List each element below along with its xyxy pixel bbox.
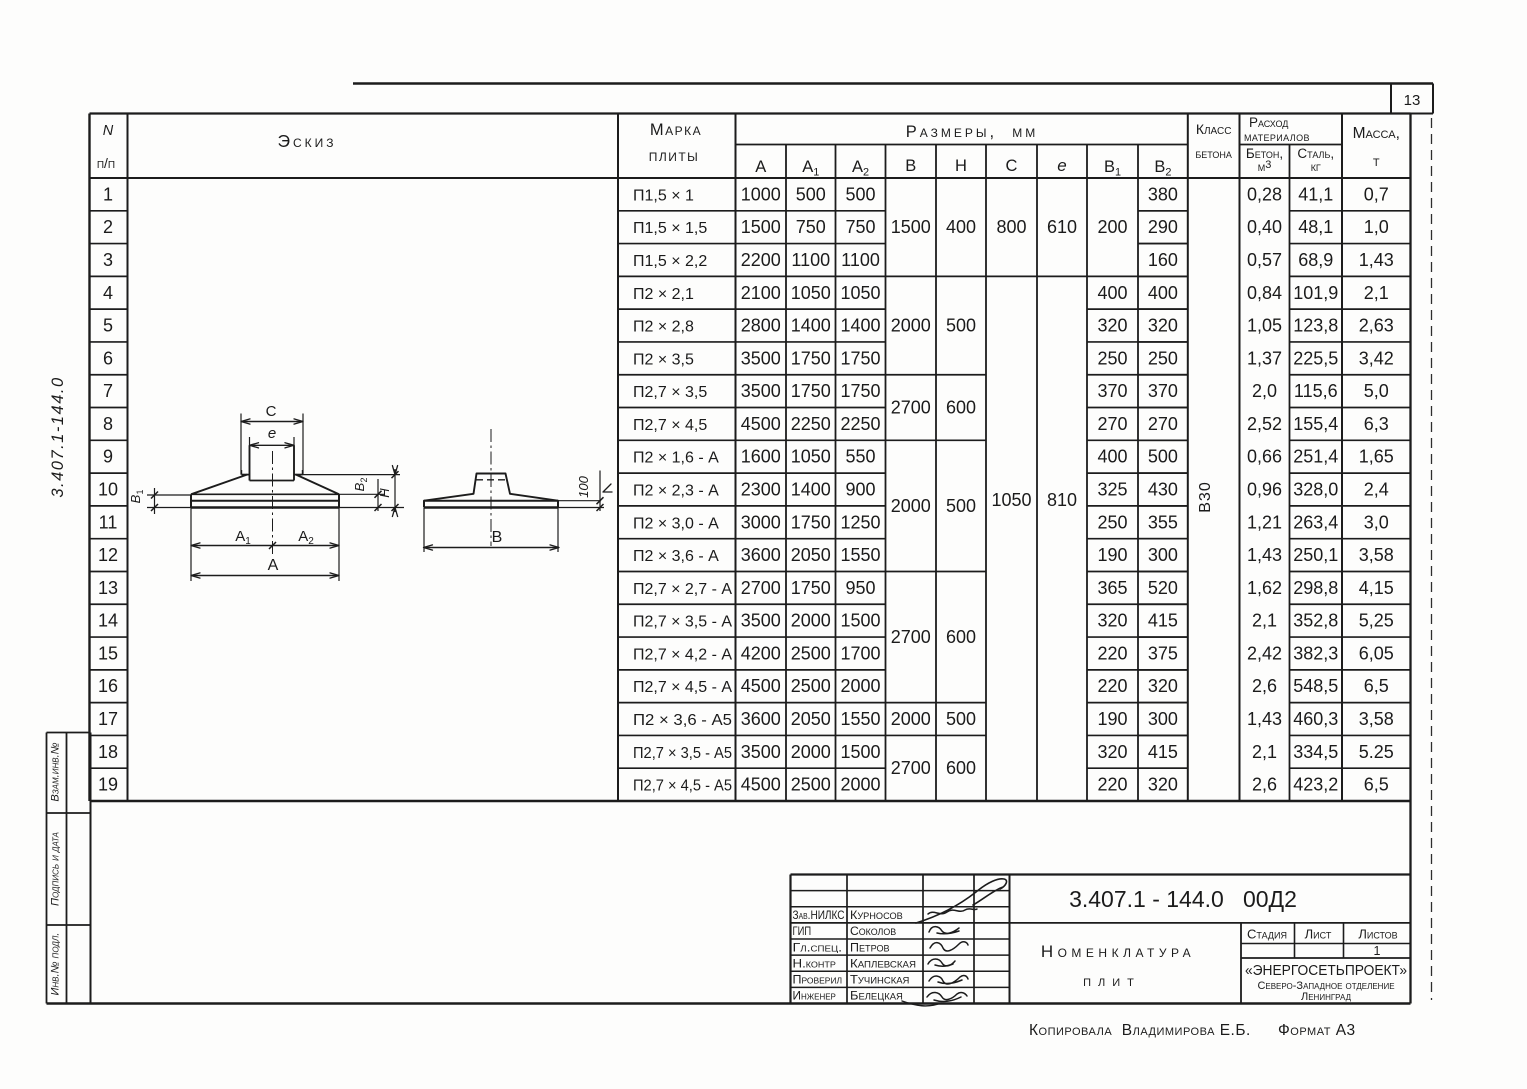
svg-text:6,5: 6,5 [1364,676,1389,696]
svg-text:2,63: 2,63 [1359,316,1394,336]
svg-text:155,4: 155,4 [1293,414,1338,434]
svg-text:Белецкая: Белецкая [850,989,903,1003]
svg-text:4200: 4200 [741,643,781,663]
svg-text:6,3: 6,3 [1364,414,1389,434]
svg-text:2500: 2500 [791,643,831,663]
svg-text:2000: 2000 [840,775,880,795]
svg-text:325: 325 [1097,480,1127,500]
svg-text:1400: 1400 [791,480,831,500]
svg-text:610: 610 [1047,217,1077,237]
svg-text:250: 250 [1097,512,1127,532]
svg-text:1,65: 1,65 [1359,447,1394,467]
svg-text:2: 2 [359,477,369,482]
svg-text:400: 400 [946,217,976,237]
svg-text:Ленинград: Ленинград [1301,991,1352,1003]
svg-text:Класс: Класс [1196,121,1232,137]
svg-text:2250: 2250 [840,414,880,434]
svg-text:Инв.№ подл.: Инв.№ подл. [50,933,62,996]
svg-text:2300: 2300 [741,480,781,500]
svg-text:750: 750 [796,217,826,237]
svg-text:4500: 4500 [741,676,781,696]
svg-text:3: 3 [103,250,113,270]
svg-text:1000: 1000 [741,184,781,204]
svg-text:1550: 1550 [840,709,880,729]
svg-text:0,84: 0,84 [1247,283,1282,303]
svg-text:Каплевская: Каплевская [850,956,916,970]
svg-text:1050: 1050 [791,447,831,467]
svg-text:Тучинская: Тучинская [850,973,909,987]
svg-text:Н: Н [377,488,392,498]
svg-text:Расход: Расход [1249,115,1288,130]
svg-text:0,28: 0,28 [1247,184,1282,204]
svg-text:3,42: 3,42 [1359,348,1394,368]
svg-text:Зав.НИЛКС: Зав.НИЛКС [793,908,845,922]
svg-text:А1: А1 [235,528,251,547]
svg-text:1050: 1050 [991,490,1031,510]
svg-text:17: 17 [98,709,118,729]
svg-text:Масса,: Масса, [1353,125,1400,142]
svg-text:7: 7 [103,381,113,401]
svg-text:П2,7 × 4,5: П2,7 × 4,5 [633,417,707,434]
svg-text:2000: 2000 [891,316,931,336]
svg-text:415: 415 [1148,611,1178,631]
svg-text:1400: 1400 [791,316,831,336]
svg-text:290: 290 [1148,217,1178,237]
svg-text:400: 400 [1097,283,1127,303]
svg-text:2,1: 2,1 [1364,283,1389,303]
svg-text:Н.контр: Н.контр [793,956,836,970]
svg-text:1050: 1050 [840,283,880,303]
svg-text:4: 4 [103,283,113,303]
svg-text:П2,7 × 4,5 - А5: П2,7 × 4,5 - А5 [633,778,732,795]
svg-text:Номенклатура: Номенклатура [1041,942,1195,961]
svg-text:бетона: бетона [1195,146,1232,161]
svg-text:п/п: п/п [97,155,115,171]
svg-text:41,1: 41,1 [1298,184,1333,204]
svg-text:3500: 3500 [741,348,781,368]
svg-text:2000: 2000 [891,709,931,729]
svg-text:1750: 1750 [791,578,831,598]
svg-text:123,8: 123,8 [1293,316,1338,336]
svg-text:кг: кг [1311,159,1321,174]
svg-text:2700: 2700 [891,627,931,647]
svg-text:т: т [1373,153,1380,170]
svg-text:П2 × 1,6 - А: П2 × 1,6 - А [633,450,719,467]
svg-text:320: 320 [1097,316,1127,336]
svg-text:3.407.1-144.0: 3.407.1-144.0 [49,376,67,497]
svg-text:2: 2 [103,217,113,237]
svg-text:1: 1 [135,489,145,494]
svg-text:Петров: Петров [850,940,890,954]
svg-text:Копировала Владимирова Е.Б.: Копировала Владимирова Е.Б. [1029,1022,1251,1039]
svg-text:2,1: 2,1 [1252,611,1277,631]
svg-text:220: 220 [1097,775,1127,795]
svg-text:ГИП: ГИП [793,924,812,938]
svg-text:3,0: 3,0 [1364,512,1389,532]
svg-text:А: А [268,557,279,574]
svg-text:400: 400 [1097,447,1127,467]
svg-text:400: 400 [1148,283,1178,303]
svg-text:9: 9 [103,447,113,467]
svg-text:1750: 1750 [840,381,880,401]
svg-text:2500: 2500 [791,775,831,795]
svg-text:19: 19 [98,775,118,795]
svg-text:3,58: 3,58 [1359,545,1394,565]
svg-text:11: 11 [99,512,118,532]
svg-text:320: 320 [1148,676,1178,696]
svg-text:П2 × 3,6 - А5: П2 × 3,6 - А5 [633,712,732,729]
svg-text:2,0: 2,0 [1252,381,1277,401]
svg-text:1400: 1400 [840,316,880,336]
svg-text:4500: 4500 [741,414,781,434]
svg-text:328,0: 328,0 [1293,480,1338,500]
svg-text:415: 415 [1148,742,1178,762]
svg-text:3,58: 3,58 [1359,709,1394,729]
svg-text:2000: 2000 [840,676,880,696]
svg-text:250,1: 250,1 [1293,545,1338,565]
svg-text:10: 10 [98,480,118,500]
svg-text:В: В [352,482,367,491]
svg-text:1: 1 [103,184,113,204]
svg-text:460,3: 460,3 [1293,709,1338,729]
svg-text:Н: Н [955,157,967,175]
svg-text:15: 15 [98,643,118,663]
svg-text:П2,7 × 3,5: П2,7 × 3,5 [633,384,707,401]
svg-text:300: 300 [1148,545,1178,565]
svg-text:1500: 1500 [891,217,931,237]
svg-text:380: 380 [1148,184,1178,204]
svg-text:2000: 2000 [791,611,831,631]
svg-text:Курносов: Курносов [850,908,903,922]
svg-text:2,1: 2,1 [1252,742,1277,762]
svg-text:3600: 3600 [741,709,781,729]
svg-text:300: 300 [1148,709,1178,729]
svg-text:5,25: 5,25 [1359,611,1394,631]
svg-text:370: 370 [1097,381,1127,401]
svg-text:12: 12 [98,545,118,565]
svg-text:263,4: 263,4 [1293,512,1338,532]
svg-text:материалов: материалов [1244,129,1310,144]
svg-text:Гл.спец.: Гл.спец. [793,940,843,954]
svg-text:0,57: 0,57 [1247,250,1282,270]
svg-text:С: С [1006,157,1018,175]
svg-text:А: А [755,158,766,176]
svg-text:1500: 1500 [840,742,880,762]
svg-text:2,6: 2,6 [1252,775,1277,795]
svg-text:600: 600 [946,758,976,778]
svg-text:5: 5 [103,316,113,336]
svg-text:В1: В1 [1104,158,1121,179]
svg-text:2,6: 2,6 [1252,676,1277,696]
svg-text:3500: 3500 [741,611,781,631]
svg-text:1750: 1750 [840,348,880,368]
svg-text:В: В [492,529,503,546]
svg-text:П2,7 × 3,5 - А: П2,7 × 3,5 - А [633,614,732,631]
svg-text:48,1: 48,1 [1298,217,1333,237]
svg-text:225,5: 225,5 [1293,348,1338,368]
svg-text:500: 500 [946,709,976,729]
svg-text:3500: 3500 [741,381,781,401]
svg-text:Соколов: Соколов [850,924,896,938]
svg-text:Инженер: Инженер [793,989,836,1003]
svg-text:2700: 2700 [741,578,781,598]
svg-text:В: В [128,494,143,503]
svg-text:68,9: 68,9 [1298,250,1333,270]
svg-text:2100: 2100 [741,283,781,303]
svg-text:375: 375 [1148,643,1178,663]
svg-text:298,8: 298,8 [1293,578,1338,598]
svg-text:П2 × 2,3 - А: П2 × 2,3 - А [633,483,719,500]
svg-text:Эскиз: Эскиз [277,131,336,151]
svg-text:6: 6 [103,348,113,368]
svg-text:1500: 1500 [741,217,781,237]
svg-text:600: 600 [946,627,976,647]
svg-text:В30: В30 [1197,481,1214,512]
svg-text:13: 13 [1404,92,1421,109]
svg-text:плит: плит [1083,973,1141,990]
svg-text:16: 16 [98,676,118,696]
svg-text:6,05: 6,05 [1359,643,1394,663]
svg-text:2050: 2050 [791,545,831,565]
svg-text:250: 250 [1148,348,1178,368]
svg-text:е: е [268,425,276,442]
svg-text:1,37: 1,37 [1247,348,1282,368]
svg-text:2700: 2700 [891,758,931,778]
svg-text:800: 800 [996,217,1026,237]
svg-text:1100: 1100 [791,250,830,270]
svg-text:1,21: 1,21 [1247,512,1282,532]
svg-text:Формат А3: Формат А3 [1278,1022,1356,1039]
svg-text:160: 160 [1148,250,1178,270]
svg-text:П2,7 × 3,5 - А5: П2,7 × 3,5 - А5 [633,745,732,762]
svg-text:8: 8 [103,414,113,434]
svg-text:1750: 1750 [791,348,831,368]
svg-text:334,5: 334,5 [1293,742,1338,762]
svg-text:4,15: 4,15 [1359,578,1394,598]
svg-text:100: 100 [576,475,591,497]
svg-text:П2 × 2,8: П2 × 2,8 [633,319,694,336]
svg-text:750: 750 [845,217,875,237]
svg-text:0,96: 0,96 [1247,480,1282,500]
svg-text:2200: 2200 [741,250,781,270]
svg-text:115,6: 115,6 [1294,381,1338,401]
svg-text:П2 × 3,5: П2 × 3,5 [633,351,694,368]
svg-text:423,2: 423,2 [1293,775,1338,795]
svg-text:1,43: 1,43 [1359,250,1394,270]
svg-text:500: 500 [1148,447,1178,467]
svg-text:2050: 2050 [791,709,831,729]
svg-text:320: 320 [1148,775,1178,795]
svg-text:14: 14 [98,611,118,631]
svg-text:В: В [905,157,916,175]
svg-text:Листов: Листов [1358,927,1397,942]
svg-text:1,0: 1,0 [1364,217,1389,237]
svg-text:А2: А2 [852,158,869,179]
svg-text:810: 810 [1047,490,1077,510]
svg-text:548,5: 548,5 [1293,676,1338,696]
svg-text:Лист: Лист [1305,927,1332,942]
svg-text:190: 190 [1097,545,1127,565]
svg-text:3500: 3500 [741,742,781,762]
svg-text:900: 900 [845,480,875,500]
svg-text:1: 1 [1374,944,1381,958]
svg-text:П2,7 × 4,2 - А: П2,7 × 4,2 - А [633,646,732,663]
svg-text:Марка: Марка [650,121,702,139]
svg-text:1500: 1500 [840,611,880,631]
svg-text:0,66: 0,66 [1247,447,1282,467]
svg-text:251,4: 251,4 [1293,447,1338,467]
svg-text:270: 270 [1148,414,1178,434]
svg-text:С: С [266,403,277,420]
svg-text:Стадия: Стадия [1247,927,1287,942]
svg-text:0,40: 0,40 [1247,217,1282,237]
svg-text:П1,5 × 1: П1,5 × 1 [633,187,694,204]
svg-text:2000: 2000 [891,496,931,516]
svg-text:355: 355 [1148,512,1178,532]
svg-text:600: 600 [946,398,976,418]
svg-text:1,43: 1,43 [1247,709,1282,729]
svg-text:2000: 2000 [791,742,831,762]
svg-text:500: 500 [946,496,976,516]
svg-text:520: 520 [1148,578,1178,598]
svg-text:0,7: 0,7 [1364,184,1389,204]
svg-text:1,05: 1,05 [1247,316,1282,336]
svg-text:6,5: 6,5 [1364,775,1389,795]
svg-text:Подпись и дата: Подпись и дата [50,832,62,906]
svg-text:320: 320 [1097,742,1127,762]
svg-text:2700: 2700 [891,398,931,418]
svg-text:950: 950 [845,578,875,598]
svg-text:5,0: 5,0 [1364,381,1389,401]
svg-text:370: 370 [1148,381,1178,401]
svg-text:190: 190 [1097,709,1127,729]
svg-text:320: 320 [1148,316,1178,336]
svg-text:101,9: 101,9 [1293,283,1338,303]
svg-text:365: 365 [1097,578,1127,598]
svg-text:2,52: 2,52 [1247,414,1282,434]
svg-text:П1,5 × 1,5: П1,5 × 1,5 [633,220,707,237]
svg-text:2,4: 2,4 [1364,480,1389,500]
svg-text:352,8: 352,8 [1293,611,1338,631]
svg-text:18: 18 [98,742,118,762]
svg-text:382,3: 382,3 [1293,643,1338,663]
svg-text:270: 270 [1097,414,1127,434]
svg-text:П2 × 2,1: П2 × 2,1 [633,286,694,303]
svg-text:П2,7 × 2,7 - А: П2,7 × 2,7 - А [633,581,732,598]
svg-text:П1,5 × 2,2: П1,5 × 2,2 [633,253,707,270]
svg-text:Взам.инв.№: Взам.инв.№ [50,742,62,801]
svg-text:500: 500 [845,184,875,204]
svg-text:е: е [1057,156,1066,175]
svg-text:550: 550 [845,447,875,467]
svg-text:1750: 1750 [791,381,831,401]
svg-text:П2 × 3,6 - А: П2 × 3,6 - А [633,548,719,565]
svg-text:2,42: 2,42 [1247,643,1282,663]
svg-text:500: 500 [946,316,976,336]
svg-text:5.25: 5.25 [1359,742,1394,762]
svg-text:Размеры, мм: Размеры, мм [906,123,1039,141]
svg-text:3000: 3000 [741,512,781,532]
svg-text:250: 250 [1097,348,1127,368]
svg-text:П2,7 × 4,5 - А: П2,7 × 4,5 - А [633,679,732,696]
svg-text:1700: 1700 [840,643,880,663]
svg-text:«ЭНЕРГОСЕТЬПРОЕКТ»: «ЭНЕРГОСЕТЬПРОЕКТ» [1245,962,1407,979]
svg-text:П2 × 3,0 - А: П2 × 3,0 - А [633,515,719,532]
svg-text:1,62: 1,62 [1247,578,1282,598]
svg-text:N: N [103,123,114,139]
svg-text:13: 13 [98,578,118,598]
svg-text:1050: 1050 [791,283,831,303]
svg-text:1600: 1600 [741,447,781,467]
svg-text:220: 220 [1097,643,1127,663]
svg-text:1100: 1100 [841,250,880,270]
svg-text:430: 430 [1148,480,1178,500]
svg-text:220: 220 [1097,676,1127,696]
svg-text:А1: А1 [802,158,819,179]
svg-text:плиты: плиты [649,147,700,165]
svg-text:2800: 2800 [741,316,781,336]
svg-text:м3: м3 [1258,159,1272,174]
svg-text:1550: 1550 [840,545,880,565]
svg-text:А2: А2 [298,528,314,547]
svg-text:1250: 1250 [840,512,880,532]
svg-text:Проверил: Проверил [793,973,843,987]
svg-text:1750: 1750 [791,512,831,532]
svg-text:2250: 2250 [791,414,831,434]
svg-text:1,43: 1,43 [1247,545,1282,565]
svg-text:2500: 2500 [791,676,831,696]
svg-text:3.407.1 - 144.0 00Д2: 3.407.1 - 144.0 00Д2 [1069,886,1297,912]
svg-text:3600: 3600 [741,545,781,565]
svg-text:320: 320 [1097,611,1127,631]
svg-text:4500: 4500 [741,775,781,795]
svg-text:200: 200 [1097,217,1127,237]
svg-text:В2: В2 [1154,158,1171,179]
svg-text:500: 500 [796,184,826,204]
